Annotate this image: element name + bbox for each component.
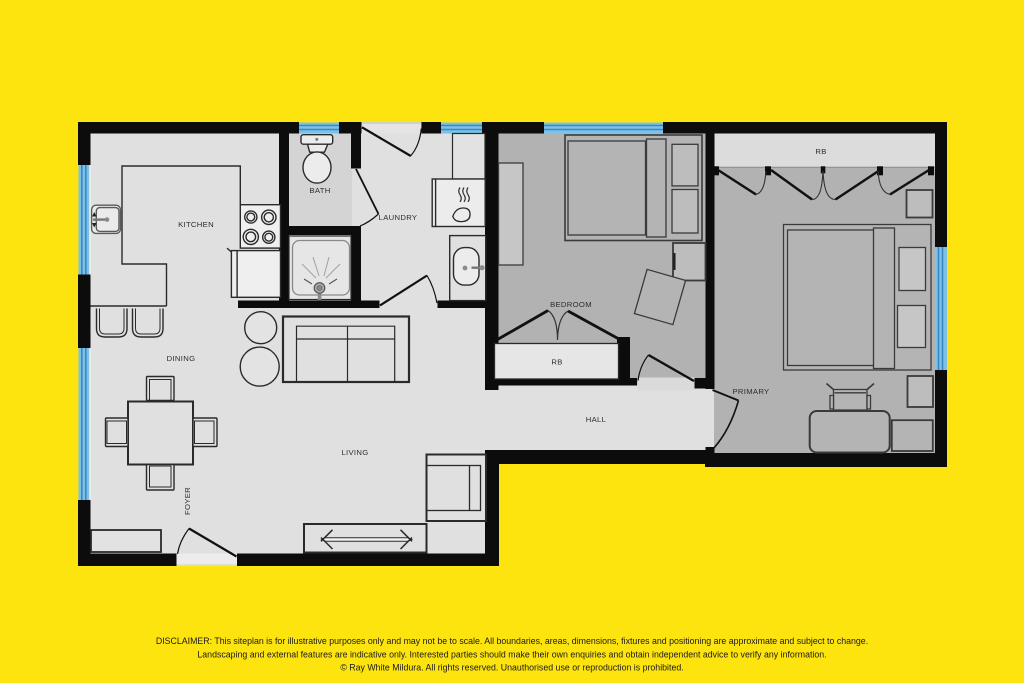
- svg-text:RB: RB: [815, 147, 826, 156]
- svg-text:DINING: DINING: [167, 354, 196, 363]
- svg-text:KITCHEN: KITCHEN: [178, 220, 214, 229]
- svg-text:© Ray White Mildura. All right: © Ray White Mildura. All rights reserved…: [340, 663, 683, 673]
- svg-text:Landscaping and external featu: Landscaping and external features are in…: [197, 649, 826, 659]
- svg-text:LIVING: LIVING: [341, 448, 368, 457]
- svg-text:LAUNDRY: LAUNDRY: [379, 213, 418, 222]
- svg-text:PRIMARY: PRIMARY: [733, 387, 770, 396]
- svg-text:DISCLAIMER: This siteplan is f: DISCLAIMER: This siteplan is for illustr…: [156, 636, 868, 646]
- svg-text:HALL: HALL: [586, 415, 607, 424]
- svg-text:RB: RB: [551, 358, 562, 367]
- svg-text:BEDROOM: BEDROOM: [550, 300, 592, 309]
- svg-text:FOYER: FOYER: [183, 487, 192, 515]
- svg-text:BATH: BATH: [309, 186, 330, 195]
